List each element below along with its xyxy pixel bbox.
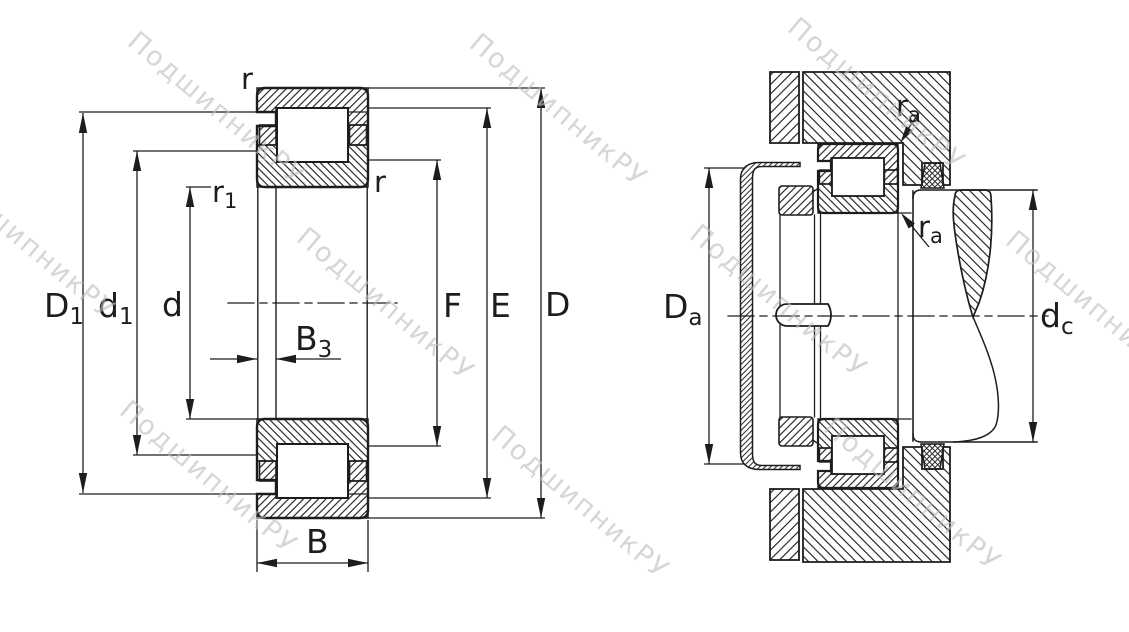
label-ra-bottom: ra xyxy=(918,210,943,248)
watermark-text: ПодшипникРУ xyxy=(1000,225,1129,391)
spacer-ring-top xyxy=(779,186,813,215)
bearing-technical-drawing: r r1 r D1 d1 d B3 F E D B xyxy=(0,0,1129,632)
roller xyxy=(832,158,884,196)
mounted-bearing-top-half xyxy=(818,144,898,213)
label-r-top: r xyxy=(241,62,253,96)
label-D: D xyxy=(545,285,570,324)
label-B3: B3 xyxy=(295,319,332,363)
label-E: E xyxy=(490,286,511,325)
label-F: F xyxy=(443,286,462,325)
cage-right xyxy=(350,461,367,481)
cage-right xyxy=(350,125,367,145)
watermark-text: ПодшипникРУ xyxy=(486,420,676,586)
label-Da: Da xyxy=(663,287,703,331)
bearing-bottom-half xyxy=(257,419,368,518)
seal-bottom xyxy=(921,444,944,469)
shaft-break-curve xyxy=(954,317,998,442)
cage-left xyxy=(260,461,277,481)
shaft-section-hatch xyxy=(953,190,992,317)
spacer-ring-bottom xyxy=(779,417,813,446)
label-r-inner: r xyxy=(374,165,386,199)
housing-wall-top xyxy=(770,72,799,143)
label-r1: r1 xyxy=(212,175,237,213)
housing-wall-bottom xyxy=(770,489,799,560)
label-d: d xyxy=(162,285,183,324)
watermark-text: ПодшипникРУ xyxy=(464,28,654,194)
watermark-text: ПодшипникРУ xyxy=(684,219,874,385)
label-B: B xyxy=(306,522,329,561)
roller xyxy=(277,444,348,498)
cage-right xyxy=(885,170,898,184)
bearing-drawing-page: r r1 r D1 d1 d B3 F E D B xyxy=(0,0,1129,632)
